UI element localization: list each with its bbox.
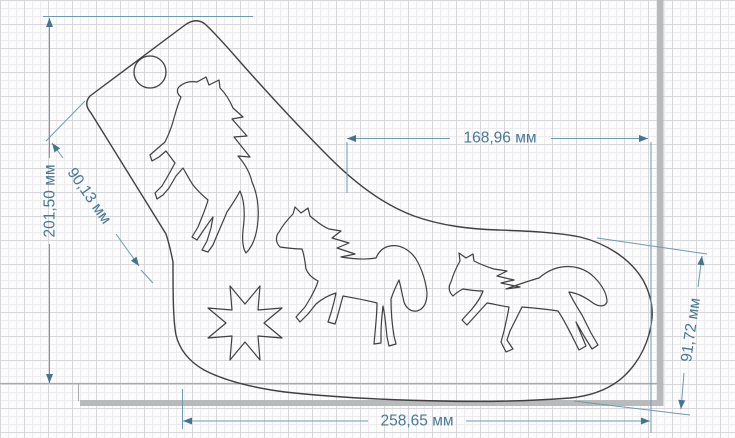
dimension-label-bottom-length[interactable]: 258,65 мм	[380, 413, 453, 430]
dimension-label-height-left[interactable]: 201,50 мм	[42, 164, 59, 237]
cad-viewport[interactable]: 201,50 мм 90,13 мм 168,96 мм 258,65 мм 9…	[0, 0, 735, 438]
drawing-canvas[interactable]: 201,50 мм 90,13 мм 168,96 мм 258,65 мм 9…	[0, 0, 735, 438]
sheet-shadow-right	[657, 0, 664, 406]
dimension-label-top-width[interactable]: 168,96 мм	[463, 130, 536, 147]
